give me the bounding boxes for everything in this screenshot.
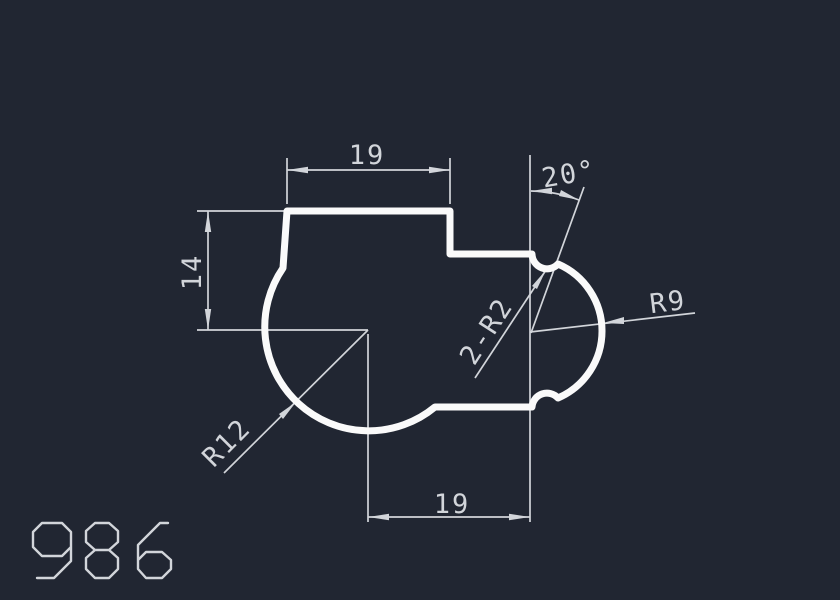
- label-left-height: 14: [177, 254, 208, 291]
- label-radius-right: R9: [648, 285, 688, 320]
- label-top-width: 19: [349, 140, 386, 171]
- cad-drawing: 19 20° 14 2-R2 R9 R12 19: [0, 0, 840, 600]
- cad-viewport: 19 20° 14 2-R2 R9 R12 19 986: [0, 0, 840, 600]
- canvas-background: [0, 0, 840, 600]
- label-bottom-width: 19: [434, 489, 471, 520]
